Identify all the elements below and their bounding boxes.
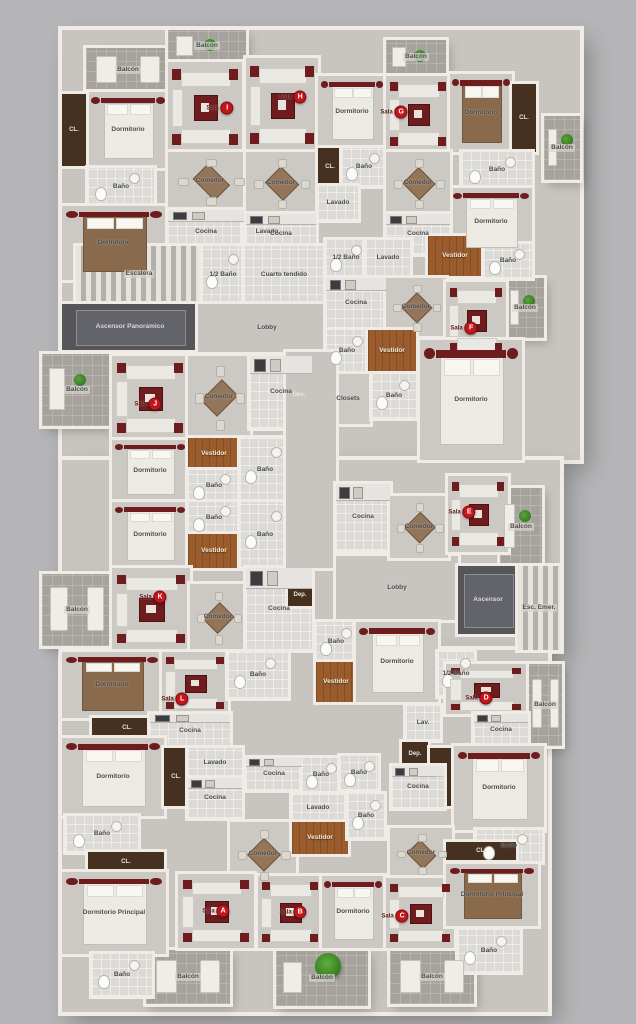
room-dormitorio-i: Dormitorio	[88, 92, 168, 168]
nightstand-icon	[507, 348, 518, 359]
room-dormitorio-principal-r: Dormitorio Principal	[446, 864, 538, 926]
washbasin-icon	[341, 628, 352, 639]
chair-icon	[397, 524, 405, 533]
stove-icon	[477, 715, 488, 722]
room-cocina-d: Cocina	[474, 714, 528, 746]
pillow-icon	[86, 750, 112, 761]
chair-icon	[394, 180, 403, 189]
lounger-icon	[50, 587, 67, 631]
side-table-icon	[495, 288, 502, 297]
washbasin-icon	[111, 821, 122, 832]
room-label: Balcón	[175, 973, 201, 980]
toilet-icon	[344, 773, 356, 787]
room-sala-g	[386, 76, 450, 152]
side-table-icon	[166, 702, 174, 709]
chair-icon	[238, 851, 247, 860]
pillow-icon	[473, 359, 499, 375]
pillow-icon	[493, 199, 515, 209]
pillow-icon	[399, 635, 421, 647]
nightstand-icon	[426, 628, 435, 635]
washbasin-icon	[505, 157, 516, 168]
chair-icon	[435, 524, 443, 533]
room-label: Lavado	[377, 254, 400, 261]
room-label: CL.	[69, 127, 79, 134]
stove-icon	[173, 212, 187, 221]
room-lavado-f: Lavado	[366, 240, 410, 276]
side-table-icon	[172, 69, 181, 80]
chair-icon	[197, 614, 205, 623]
tray-icon	[201, 103, 210, 112]
nightstand-icon	[115, 507, 123, 513]
room-cocina-e: Cocina	[336, 484, 390, 550]
sofa-icon	[457, 290, 497, 303]
tray-icon	[472, 316, 479, 324]
room-balcon-left-upper: Balcón	[42, 354, 112, 426]
room-sala-e	[448, 476, 508, 552]
lounger-icon	[504, 504, 514, 549]
chair-icon	[216, 420, 225, 431]
room-esc-emergencia: Esc. Emer.	[518, 566, 560, 650]
side-table-icon	[450, 288, 457, 297]
nightstand-icon	[115, 444, 123, 450]
lounger-icon	[176, 36, 194, 56]
side-table-icon	[452, 537, 459, 546]
chair-icon	[438, 851, 447, 859]
toilet-icon	[95, 187, 107, 201]
room-closet-l3: CL.	[88, 852, 164, 872]
room-bano-l2: Baño	[66, 816, 138, 852]
room-label: Cocina	[195, 228, 217, 235]
side-table-icon	[390, 884, 398, 892]
chair-icon	[178, 178, 189, 186]
nightstand-icon	[150, 878, 161, 885]
room-bano-l3: Baño	[92, 954, 152, 996]
nightstand-icon	[375, 881, 382, 887]
room-bano-k2: Baño	[240, 502, 290, 568]
room-lobby-2: Lobby	[336, 556, 458, 620]
chair-icon	[418, 834, 427, 842]
lounger-icon	[200, 960, 220, 993]
room-label: Cocina	[270, 230, 292, 237]
nightstand-icon	[150, 211, 161, 218]
plant-icon	[414, 50, 426, 62]
room-dormitorio-e: Dormitorio	[356, 622, 438, 702]
sink-icon	[491, 715, 501, 722]
side-table-icon	[117, 423, 126, 433]
room-closet-g: CL.	[512, 84, 536, 152]
room-dormitorio-k: Dormitorio	[112, 502, 188, 568]
pillow-icon	[87, 885, 114, 897]
room-label: Baño	[113, 183, 129, 190]
pillow-icon	[334, 88, 352, 99]
chair-icon	[278, 200, 288, 209]
stove-icon	[191, 780, 202, 788]
floor-plan-canvas: BalcónBalcónBalcónBalcónBalcónBalcónBalc…	[0, 0, 636, 1024]
room-bano-f3: Baño	[372, 374, 416, 418]
pillow-icon	[494, 874, 518, 883]
side-table-icon	[240, 933, 249, 942]
room-dormitorio-principal-l: Dormitorio Principal	[62, 872, 166, 954]
room-label: Vestidor	[307, 834, 333, 841]
room-balcon-top-left: Balcón	[86, 48, 170, 92]
stove-icon	[250, 216, 263, 224]
side-table-icon	[176, 634, 185, 644]
lounger-icon	[532, 679, 541, 729]
plant-icon	[315, 953, 341, 979]
side-table-icon	[166, 657, 174, 664]
washbasin-icon	[129, 173, 140, 184]
room-label: Cocina	[407, 230, 429, 237]
room-comedor-k: Comedor	[190, 584, 246, 650]
room-label: Balcón	[115, 66, 141, 73]
room-sala-h	[246, 58, 318, 152]
dining-table-icon	[203, 602, 235, 634]
room-bano-e: Baño	[316, 622, 356, 662]
side-table-icon	[451, 704, 461, 710]
sofa-icon	[192, 929, 243, 942]
room-vestidor-j: Vestidor	[188, 438, 240, 470]
room-label: Dep.	[293, 592, 306, 599]
lounger-icon	[96, 56, 116, 84]
room-dormitorio-g: Dormitorio	[450, 74, 512, 152]
sofa-icon	[398, 886, 444, 899]
room-label: Balcón	[64, 606, 90, 613]
chair-icon	[236, 393, 245, 404]
nightstand-icon	[324, 881, 331, 887]
headboard-icon	[436, 350, 505, 358]
room-balcon-bottom-a: Balcón	[146, 950, 230, 1004]
room-bano-f1: Baño	[484, 244, 532, 278]
lounger-icon	[49, 368, 65, 410]
room-bano-j2: Baño	[240, 438, 290, 502]
toilet-icon	[306, 775, 318, 789]
sofa-icon	[270, 929, 313, 942]
sofa-icon	[460, 670, 513, 680]
chair-icon	[278, 159, 288, 168]
lounger-icon	[140, 56, 160, 84]
toilet-icon	[469, 170, 481, 184]
side-table-icon	[497, 482, 504, 491]
washbasin-icon	[352, 336, 363, 347]
stove-icon	[249, 759, 260, 766]
room-cocina-a: Cocina	[188, 778, 242, 818]
lounger-icon	[156, 960, 176, 993]
room-sala-i	[168, 62, 242, 152]
sofa-icon	[389, 99, 399, 131]
headboard-icon	[468, 753, 529, 759]
sofa-icon	[126, 577, 178, 591]
room-comedor-g: Comedor	[386, 152, 450, 214]
nightstand-icon	[66, 878, 77, 885]
room-closet-r: CL.	[446, 842, 516, 860]
headboard-icon	[101, 98, 155, 103]
room-bano-r: Baño	[458, 930, 520, 972]
chair-icon	[234, 614, 242, 623]
room-sala-d	[446, 664, 526, 714]
lounger-icon	[510, 290, 520, 325]
room-label: Baño	[250, 671, 266, 678]
room-label: Cuarto tendido	[261, 271, 307, 278]
pillow-icon	[444, 359, 470, 375]
headboard-icon	[460, 80, 502, 85]
sofa-icon	[451, 499, 461, 531]
sofa-icon	[165, 671, 176, 698]
nightstand-icon	[520, 193, 529, 199]
pillow-icon	[501, 759, 525, 771]
sofa-icon	[270, 884, 313, 897]
room-label: Vestidor	[323, 678, 349, 685]
stove-icon	[250, 571, 263, 585]
washbasin-icon	[220, 506, 231, 517]
sofa-icon	[174, 659, 218, 670]
chair-icon	[215, 592, 223, 601]
toilet-icon	[98, 975, 110, 989]
headboard-icon	[78, 657, 146, 662]
room-sala-a	[178, 874, 254, 948]
room-bano-l: Baño	[228, 652, 288, 698]
headboard-icon	[461, 869, 524, 873]
headboard-icon	[463, 193, 519, 198]
toilet-icon	[464, 951, 476, 965]
plant-icon	[519, 510, 531, 522]
lounger-icon	[392, 47, 406, 68]
room-label: Cocina	[263, 770, 285, 777]
toilet-icon	[320, 642, 332, 656]
nightstand-icon	[531, 752, 541, 760]
room-vestidor-f2: Vestidor	[368, 330, 416, 372]
chair-icon	[254, 180, 264, 189]
side-table-icon	[262, 934, 270, 943]
sofa-icon	[126, 418, 177, 433]
room-cuarto-tendido: Cuarto tendido	[244, 246, 324, 304]
side-table-icon	[305, 66, 314, 77]
room-bano-a: Baño	[302, 758, 340, 792]
sofa-icon	[126, 365, 177, 380]
dining-table-icon	[265, 167, 300, 202]
chair-icon	[301, 180, 311, 189]
chair-icon	[215, 635, 223, 644]
washbasin-icon	[220, 474, 231, 485]
side-table-icon	[229, 69, 238, 80]
nightstand-icon	[149, 743, 160, 750]
room-label: Vestidor	[442, 252, 468, 259]
room-label: Esc. Emer.	[521, 604, 558, 611]
washbasin-icon	[399, 380, 410, 391]
room-label: Vestidor	[201, 450, 227, 457]
side-table-icon	[512, 668, 522, 674]
room-closet-h: CL.	[318, 148, 342, 186]
sink-icon	[192, 212, 205, 221]
room-label: CL.	[325, 164, 335, 171]
room-sala-b	[258, 876, 322, 948]
nightstand-icon	[524, 868, 534, 874]
lounger-icon	[400, 960, 420, 993]
room-label: Lavado	[327, 199, 350, 206]
toilet-icon	[193, 486, 205, 500]
elevator-cab-icon	[464, 574, 514, 628]
stove-icon	[254, 359, 266, 372]
room-comedor-h: Comedor	[246, 152, 316, 214]
room-cocina-c: Cocina	[392, 766, 444, 808]
side-table-icon	[390, 137, 398, 146]
side-table-icon	[117, 575, 126, 585]
sink-icon	[353, 487, 363, 499]
tray-icon	[416, 910, 424, 917]
room-label: Lavado	[307, 804, 330, 811]
side-table-icon	[512, 704, 522, 710]
sink-icon	[345, 280, 355, 290]
room-bano-i: Baño	[88, 168, 154, 206]
room-label: Vestidor	[201, 547, 227, 554]
room-balcon-top-center: Balcón	[168, 30, 246, 62]
side-table-icon	[442, 934, 450, 942]
room-lavado-l: Lavado	[188, 748, 242, 778]
pillow-icon	[86, 663, 112, 673]
room-lavado-d: Lav.	[406, 706, 440, 740]
lounger-icon	[444, 960, 464, 993]
chair-icon	[216, 366, 225, 377]
washbasin-icon	[351, 245, 362, 256]
room-label: Lav.	[417, 719, 430, 726]
room-balcon-right-f: Balcón	[506, 278, 544, 338]
side-table-icon	[174, 423, 183, 433]
sofa-icon	[126, 629, 178, 643]
room-label: Baño	[386, 392, 402, 399]
toilet-icon	[346, 167, 358, 181]
side-table-icon	[390, 934, 398, 942]
room-sala-k	[112, 568, 190, 650]
room-label: Baño	[339, 347, 355, 354]
side-table-icon	[497, 537, 504, 546]
dining-table-icon	[193, 164, 230, 201]
plant-icon	[204, 39, 216, 51]
plant-icon	[561, 134, 573, 146]
sofa-icon	[172, 89, 184, 127]
chair-icon	[393, 304, 402, 312]
chair-icon	[413, 323, 422, 331]
pillow-icon	[107, 104, 128, 115]
stove-icon	[330, 280, 342, 290]
washbasin-icon	[364, 761, 375, 772]
room-comedor-f: Comedor	[386, 278, 446, 336]
room-balcon-top-right: Balcón	[386, 40, 446, 74]
toilet-icon	[330, 258, 342, 272]
lounger-icon	[550, 679, 559, 729]
headboard-icon	[124, 507, 176, 512]
side-table-icon	[262, 882, 270, 891]
room-lavado-b: Lavado	[292, 794, 344, 822]
washbasin-icon	[326, 763, 337, 774]
room-vestidor-b: Vestidor	[292, 822, 348, 854]
room-dormitorio-d: Dormitorio	[454, 746, 544, 830]
sofa-icon	[116, 593, 128, 628]
room-label: CL.	[519, 115, 529, 122]
room-sala-j	[112, 356, 188, 440]
room-balcon-bottom-b: Balcón	[276, 950, 368, 1006]
sofa-icon	[398, 930, 444, 943]
room-sala-f	[446, 282, 506, 358]
room-label: Baño	[114, 971, 130, 978]
sink-icon	[270, 359, 281, 372]
toilet-icon	[352, 816, 364, 830]
dining-table-icon	[247, 838, 281, 872]
room-lobby-1: Lobby	[198, 304, 336, 352]
headboard-icon	[79, 212, 150, 217]
room-label: Baño	[481, 947, 497, 954]
room-sala-l	[162, 652, 228, 714]
side-table-icon	[216, 657, 224, 664]
chair-icon	[436, 180, 445, 189]
sofa-icon	[261, 898, 271, 929]
pillow-icon	[115, 750, 141, 761]
plant-icon	[74, 374, 86, 386]
nightstand-icon	[376, 81, 383, 87]
room-bano-b2: Baño	[348, 794, 384, 838]
dining-table-icon	[402, 167, 435, 200]
chair-icon	[260, 872, 269, 881]
side-table-icon	[452, 482, 459, 491]
sofa-icon	[182, 896, 194, 928]
side-table-icon	[117, 634, 126, 644]
pillow-icon	[354, 888, 371, 899]
elevator-cab-icon	[76, 310, 187, 347]
pillow-icon	[152, 513, 172, 523]
room-dormitorio-l2: Dormitorio	[62, 738, 164, 816]
chair-icon	[433, 304, 442, 312]
toilet-icon	[73, 834, 85, 848]
room-medio-bano-f: 1/2 Baño	[326, 240, 366, 276]
nightstand-icon	[91, 97, 100, 104]
side-table-icon	[183, 880, 192, 889]
sofa-icon	[449, 305, 459, 337]
washbasin-icon	[129, 960, 140, 971]
room-label: Cocina	[352, 513, 374, 520]
nightstand-icon	[458, 752, 468, 760]
room-label: Vestidor	[379, 347, 405, 354]
sofa-icon	[460, 701, 513, 711]
sink-icon	[406, 216, 417, 224]
sink-icon	[205, 780, 215, 788]
room-vestidor-e: Vestidor	[316, 662, 356, 702]
room-label: CL.	[121, 859, 131, 866]
pillow-icon	[376, 635, 398, 647]
room-cocina-b: Cocina	[246, 758, 302, 790]
washbasin-icon	[517, 834, 528, 845]
sofa-icon	[181, 129, 230, 145]
room-comedor-i: Comedor	[168, 152, 252, 210]
pillow-icon	[87, 218, 114, 229]
sink-icon	[176, 715, 189, 722]
room-closet-i: CL.	[62, 94, 86, 166]
side-table-icon	[240, 880, 249, 889]
sofa-icon	[250, 86, 261, 126]
pillow-icon	[337, 888, 354, 899]
room-label: Baño	[206, 482, 222, 489]
headboard-icon	[332, 882, 374, 887]
nightstand-icon	[66, 657, 77, 663]
pillow-icon	[353, 88, 371, 99]
toilet-icon	[206, 275, 218, 289]
headboard-icon	[329, 82, 375, 87]
room-label: Baño	[356, 163, 372, 170]
room-label: Balcón	[419, 973, 445, 980]
room-label: Cocina	[407, 783, 429, 790]
room-label: Cocina	[204, 794, 226, 801]
tray-icon	[414, 110, 422, 118]
room-dormitorio-l: Dormitorio	[62, 652, 162, 718]
tray-icon	[191, 680, 199, 686]
room-label: Baño	[500, 257, 516, 264]
